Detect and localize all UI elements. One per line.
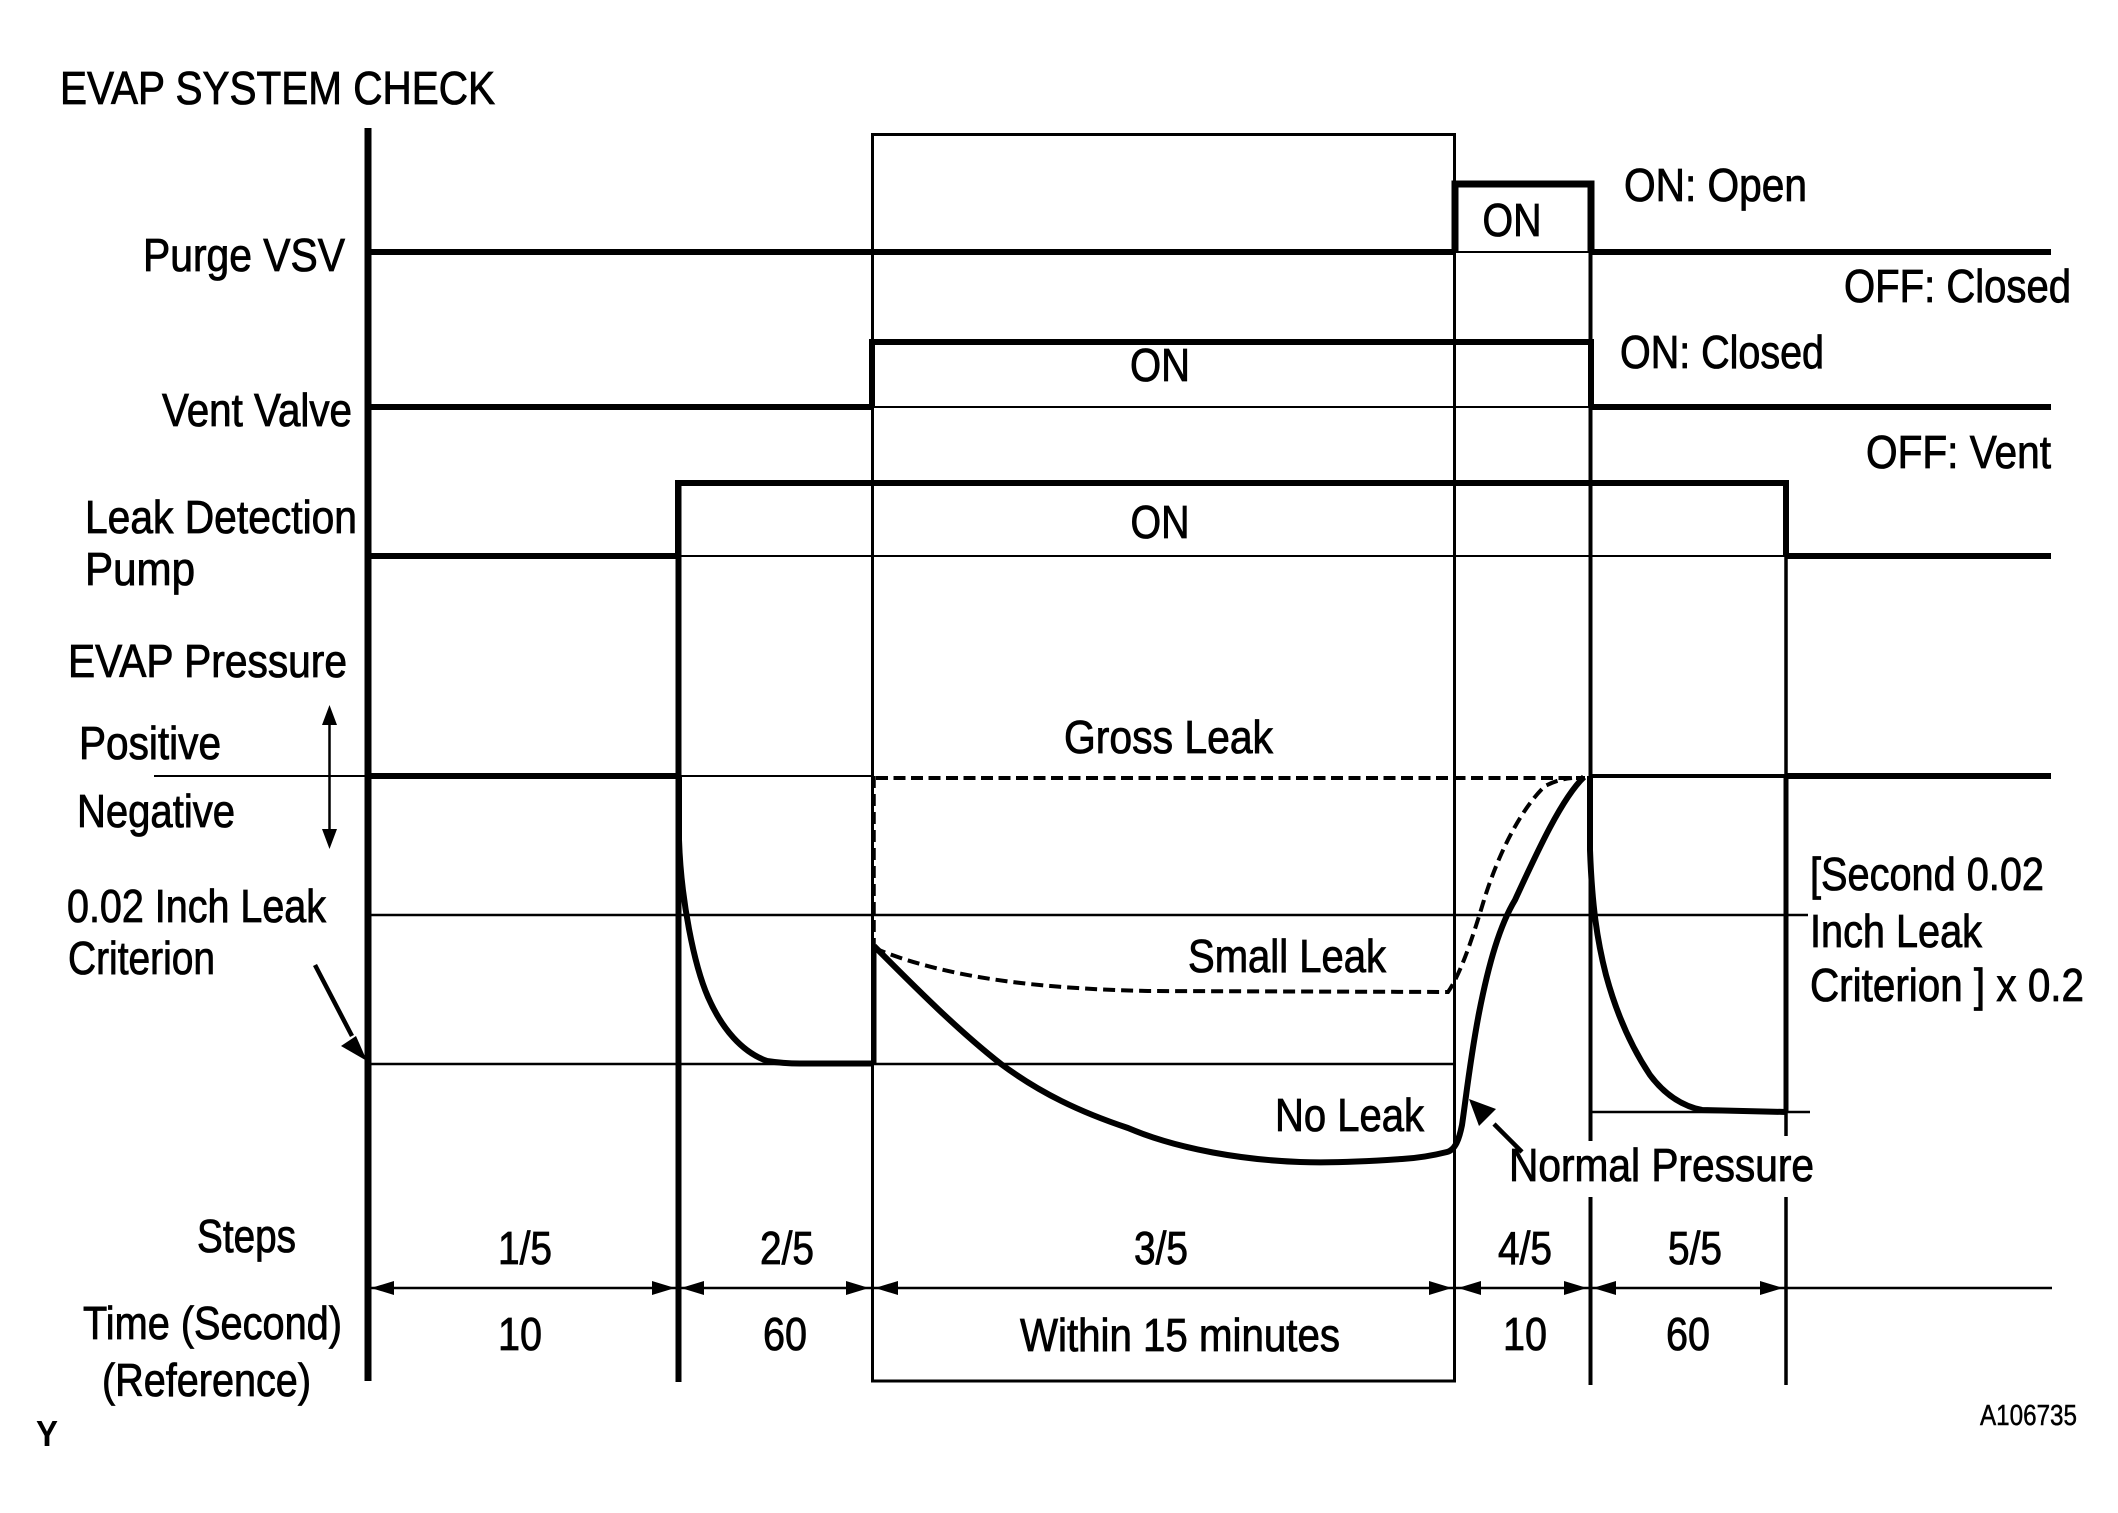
svg-text:5/5: 5/5 xyxy=(1668,1222,1722,1274)
svg-text:Time (Second): Time (Second) xyxy=(83,1297,342,1349)
svg-text:4/5: 4/5 xyxy=(1498,1222,1552,1274)
svg-text:Small Leak: Small Leak xyxy=(1188,930,1387,982)
svg-text:OFF: Closed: OFF: Closed xyxy=(1844,260,2071,312)
svg-text:0.02 Inch Leak: 0.02 Inch Leak xyxy=(67,880,327,932)
svg-text:Inch Leak: Inch Leak xyxy=(1810,905,1983,957)
svg-text:Criterion ] x 0.2: Criterion ] x 0.2 xyxy=(1810,959,2084,1011)
svg-text:(Reference): (Reference) xyxy=(102,1354,311,1406)
svg-text:EVAP Pressure: EVAP Pressure xyxy=(68,635,347,687)
svg-text:Y: Y xyxy=(36,1413,58,1454)
svg-text:1/5: 1/5 xyxy=(498,1222,552,1274)
svg-text:60: 60 xyxy=(763,1308,807,1360)
svg-text:Negative: Negative xyxy=(77,785,235,837)
svg-text:Vent Valve: Vent Valve xyxy=(162,384,352,436)
svg-text:ON: Closed: ON: Closed xyxy=(1620,326,1824,378)
svg-text:No Leak: No Leak xyxy=(1275,1089,1425,1141)
svg-text:ON: Open: ON: Open xyxy=(1624,159,1807,211)
svg-text:10: 10 xyxy=(1503,1308,1547,1360)
svg-text:Pump: Pump xyxy=(85,543,195,595)
svg-text:[Second 0.02: [Second 0.02 xyxy=(1810,848,2044,900)
svg-text:60: 60 xyxy=(1666,1308,1710,1360)
svg-text:2/5: 2/5 xyxy=(760,1222,814,1274)
svg-text:Steps: Steps xyxy=(197,1210,296,1262)
svg-text:OFF: Vent: OFF: Vent xyxy=(1866,426,2051,478)
svg-text:ON: ON xyxy=(1131,496,1190,548)
svg-text:Gross Leak: Gross Leak xyxy=(1064,711,1274,763)
svg-text:Normal Pressure: Normal Pressure xyxy=(1509,1139,1814,1191)
svg-text:Criterion: Criterion xyxy=(68,932,215,984)
svg-text:3/5: 3/5 xyxy=(1134,1222,1188,1274)
svg-text:10: 10 xyxy=(498,1308,542,1360)
svg-text:ON: ON xyxy=(1483,194,1542,246)
svg-text:EVAP SYSTEM CHECK: EVAP SYSTEM CHECK xyxy=(60,62,495,114)
svg-text:ON: ON xyxy=(1130,339,1190,391)
svg-text:Purge VSV: Purge VSV xyxy=(143,229,345,281)
svg-text:A106735: A106735 xyxy=(1980,1400,2077,1432)
svg-text:Leak Detection: Leak Detection xyxy=(85,491,357,543)
svg-text:Positive: Positive xyxy=(79,717,221,769)
svg-text:Within 15 minutes: Within 15 minutes xyxy=(1020,1309,1340,1361)
